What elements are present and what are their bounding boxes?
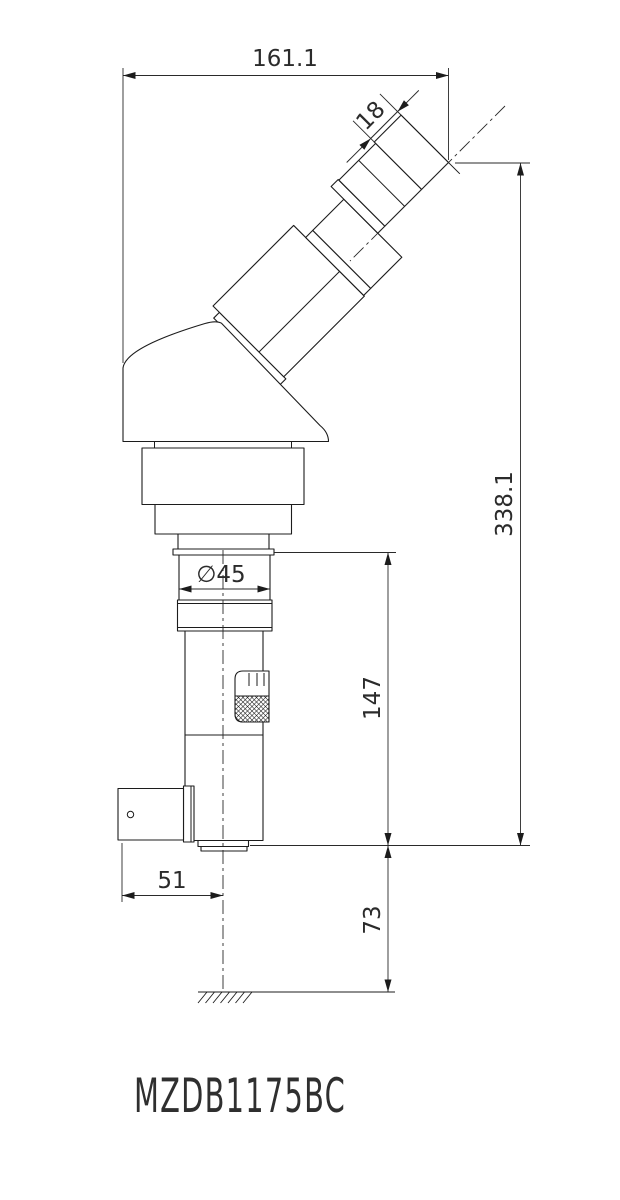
dim-label-bracket-offset: 51 [157, 868, 186, 894]
dim-label-overall-height: 338.1 [492, 471, 518, 537]
clamp-strip [184, 786, 195, 842]
dimension-bracket-offset: 51 [122, 843, 223, 902]
dim-label-diameter: ∅45 [196, 562, 245, 588]
focus-knob-knurling [235, 696, 269, 722]
focus-column [185, 631, 263, 841]
ground-surface [198, 992, 395, 1003]
body-block-middle [155, 505, 292, 535]
adapter-ring [178, 600, 273, 631]
model-number-title: MZDB1175BC [134, 1069, 346, 1124]
body-flange [173, 549, 274, 555]
body-block-upper [142, 448, 304, 505]
dim-label-eyepiece-length: 18 [352, 97, 391, 136]
bracket-block [118, 789, 184, 841]
body-block-lower [178, 534, 269, 549]
drawing-sheet: 161.1 18 338.1 ∅45 147 73 51 MZDB1175BC [0, 0, 620, 1200]
dim-label-overall-width: 161.1 [252, 46, 318, 72]
dimension-column-height: 147 [274, 553, 396, 846]
mounting-bracket [118, 786, 194, 842]
dim-label-column-height: 147 [360, 676, 386, 720]
dimension-working-distance: 73 [360, 846, 388, 993]
microscope-technical-drawing: 161.1 18 338.1 ∅45 147 73 51 MZDB1175BC [0, 0, 620, 1200]
focus-knob [235, 671, 269, 722]
dim-label-working-distance: 73 [360, 905, 386, 934]
